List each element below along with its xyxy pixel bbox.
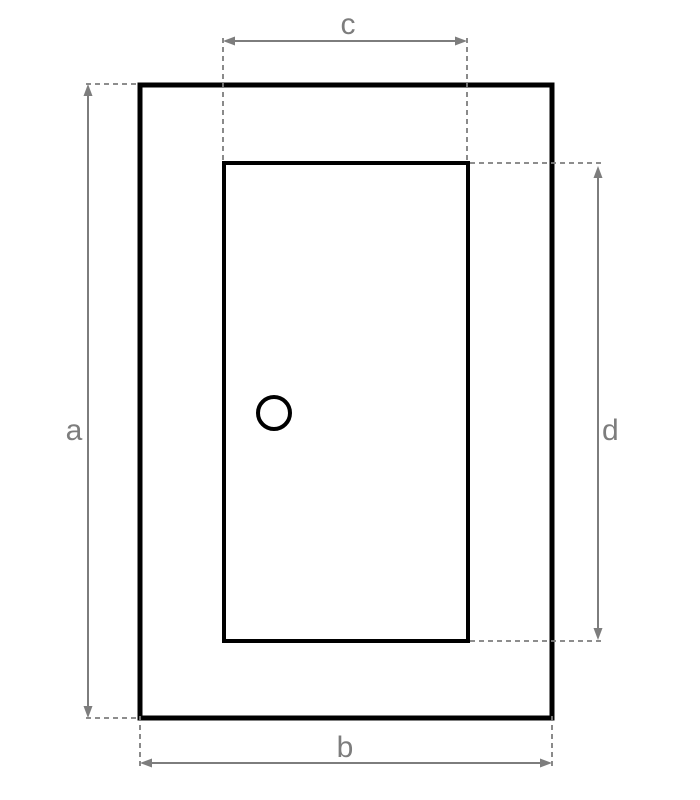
- knob-circle: [258, 397, 290, 429]
- dimension-b-label: b: [337, 731, 354, 764]
- dimension-diagram: a b c d: [0, 0, 700, 800]
- dimension-a-label: a: [66, 414, 83, 447]
- arrow-right-icon: [540, 759, 552, 768]
- arrow-up-icon: [594, 166, 603, 178]
- arrow-down-icon: [84, 706, 93, 718]
- arrow-down-icon: [594, 628, 603, 640]
- diagram-svg: a b c d: [0, 0, 700, 800]
- outer-rectangle: [140, 85, 552, 718]
- dimension-d-label: d: [602, 414, 619, 447]
- arrow-left-icon: [223, 37, 235, 46]
- dimension-a: a: [66, 84, 140, 718]
- dimension-b: b: [140, 716, 552, 768]
- arrow-up-icon: [84, 84, 93, 96]
- arrow-left-icon: [140, 759, 152, 768]
- dimension-c-label: c: [341, 8, 356, 41]
- dimension-d: d: [470, 163, 619, 641]
- arrow-right-icon: [455, 37, 467, 46]
